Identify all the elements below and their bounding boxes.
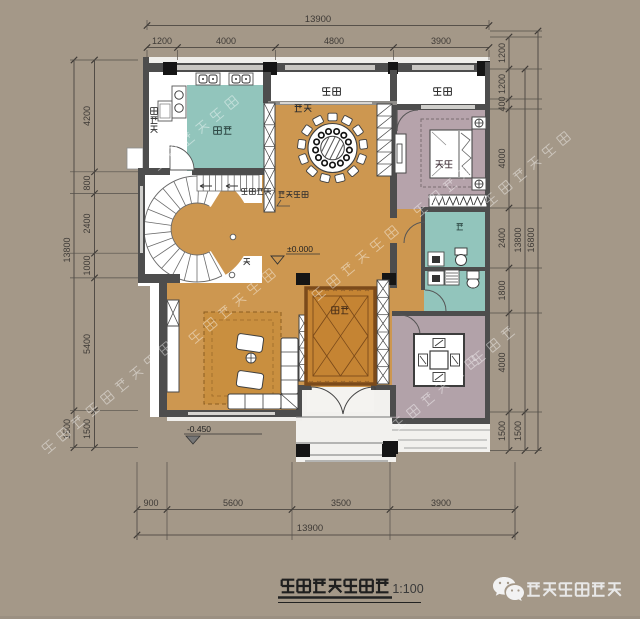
svg-text:1200: 1200	[152, 36, 172, 46]
svg-text:1500: 1500	[82, 419, 92, 439]
svg-text:4000: 4000	[497, 148, 507, 168]
svg-text:±0.000: ±0.000	[287, 244, 313, 254]
svg-text:1500: 1500	[513, 421, 523, 441]
svg-text:1500: 1500	[497, 421, 507, 441]
svg-text:4000: 4000	[216, 36, 236, 46]
svg-text:1800: 1800	[497, 280, 507, 300]
svg-text:1200: 1200	[497, 74, 507, 94]
svg-text:1500: 1500	[62, 419, 72, 439]
svg-text:1:100: 1:100	[392, 582, 423, 596]
svg-text:5600: 5600	[223, 498, 243, 508]
svg-text:3900: 3900	[431, 498, 451, 508]
svg-text:4000: 4000	[497, 352, 507, 372]
svg-text:16800: 16800	[526, 227, 536, 252]
svg-text:13900: 13900	[305, 14, 331, 25]
svg-text:13800: 13800	[62, 237, 72, 262]
svg-text:4200: 4200	[82, 106, 92, 126]
svg-text:4800: 4800	[324, 36, 344, 46]
svg-text:2400: 2400	[82, 213, 92, 233]
svg-text:-0.450: -0.450	[187, 424, 211, 434]
svg-text:900: 900	[143, 498, 158, 508]
svg-text:1200: 1200	[497, 43, 507, 63]
svg-text:800: 800	[82, 175, 92, 190]
svg-text:3500: 3500	[331, 498, 351, 508]
svg-text:13900: 13900	[297, 523, 323, 534]
svg-text:13800: 13800	[513, 227, 523, 252]
svg-text:1000: 1000	[82, 255, 92, 275]
svg-text:5400: 5400	[82, 334, 92, 354]
svg-text:2400: 2400	[497, 228, 507, 248]
svg-text:3900: 3900	[431, 36, 451, 46]
